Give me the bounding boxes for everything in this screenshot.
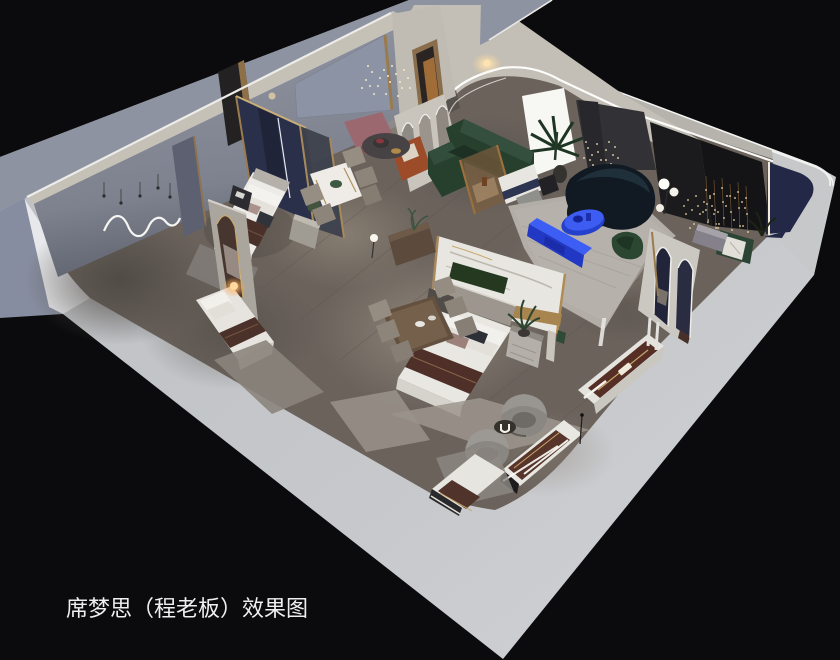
svg-text:席梦思（程老板）效果图: 席梦思（程老板）效果图 xyxy=(66,596,308,621)
